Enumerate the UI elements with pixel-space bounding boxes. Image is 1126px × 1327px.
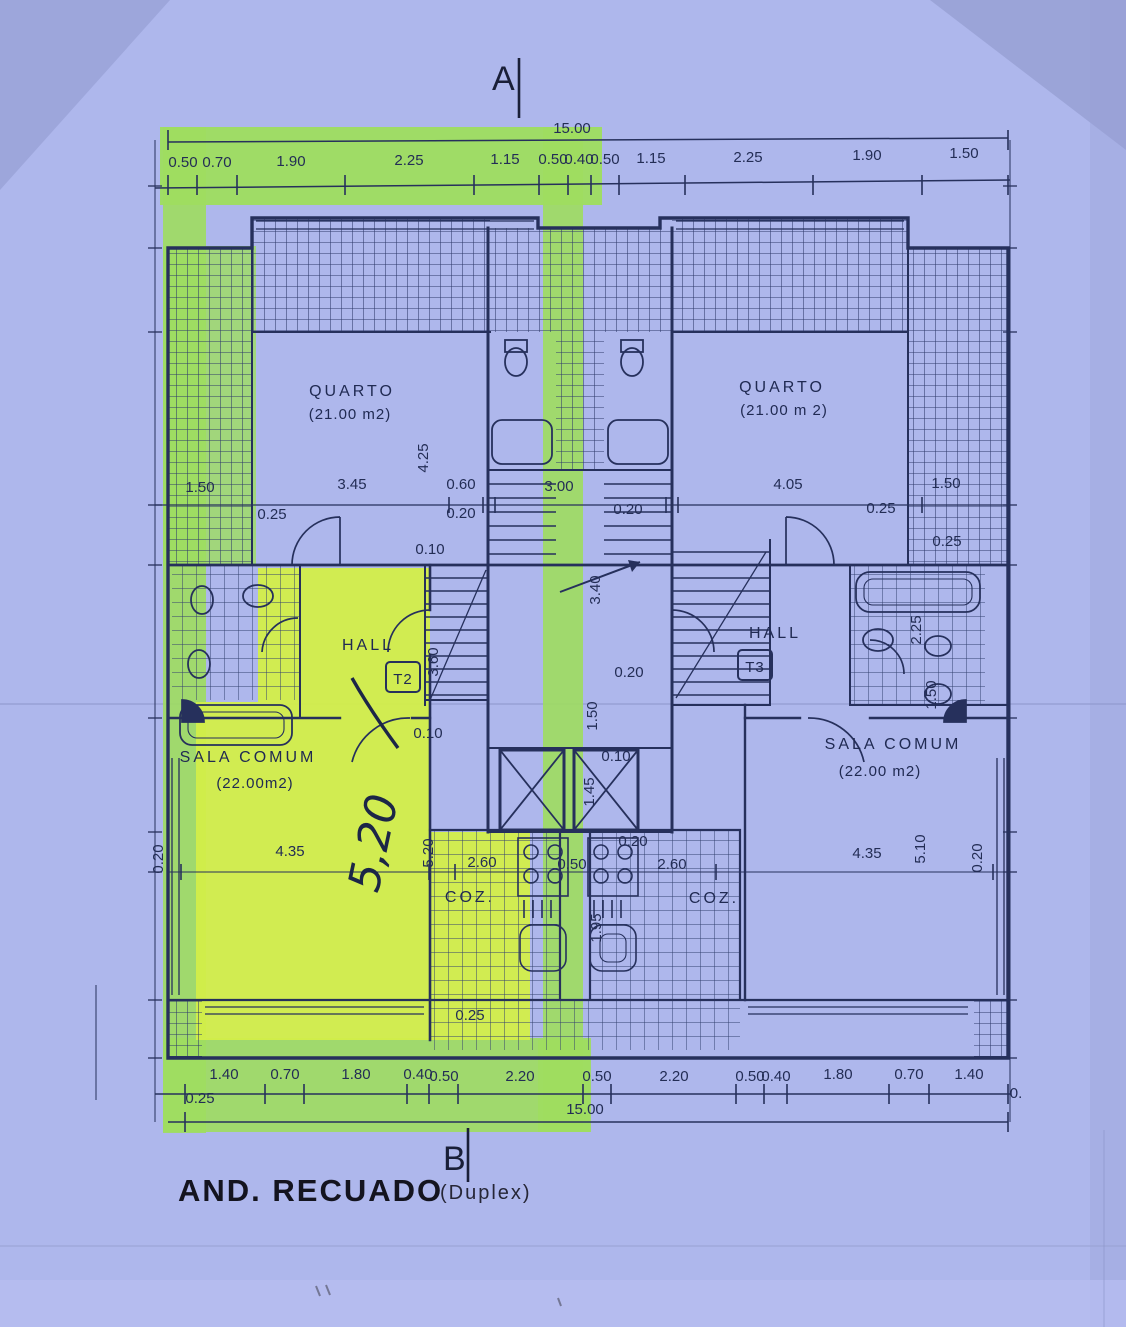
room-label-sala-right: SALA COMUM bbox=[825, 736, 962, 753]
dimension-label: 0.50 bbox=[582, 1068, 611, 1085]
dimension-label: 0.70 bbox=[202, 154, 231, 171]
dimension-label: 0. bbox=[1010, 1085, 1023, 1102]
room-area-quarto-left: (21.00 m2) bbox=[309, 406, 392, 423]
dimension-label: 1.80 bbox=[341, 1066, 370, 1083]
dimension-label: 0.70 bbox=[894, 1066, 923, 1083]
dimension-label: 5.20 bbox=[420, 838, 437, 867]
dimension-label: 0.40 bbox=[403, 1066, 432, 1083]
dimension-label: 0.20 bbox=[614, 664, 643, 681]
dimension-label: 1.50 bbox=[584, 701, 601, 730]
dimension-label: 1.80 bbox=[823, 1066, 852, 1083]
dimension-label: 0.50 bbox=[735, 1068, 764, 1085]
room-label-coz-left: COZ. bbox=[445, 889, 495, 906]
dimension-label: 3.60 bbox=[425, 647, 442, 676]
dimension-label: 1.50 bbox=[185, 479, 214, 496]
section-marker-b: B bbox=[443, 1140, 466, 1178]
dimension-label: 1.50 bbox=[949, 145, 978, 162]
dimension-label: 3.00 bbox=[544, 478, 573, 495]
unit-tag-t3: T3 bbox=[745, 659, 765, 676]
room-label-sala-left: SALA COMUM bbox=[180, 749, 317, 766]
dimension-label: 1.45 bbox=[581, 777, 598, 806]
section-marker-a: A bbox=[492, 60, 515, 98]
dimension-label: 1.95 bbox=[588, 913, 605, 942]
dimension-label: 2.25 bbox=[908, 615, 925, 644]
dimension-label: 1.90 bbox=[852, 147, 881, 164]
dimension-label: 0.40 bbox=[564, 151, 593, 168]
room-label-hall-right: HALL bbox=[749, 625, 801, 642]
dimension-label: 2.20 bbox=[505, 1068, 534, 1085]
dimension-label: 0.50 bbox=[538, 151, 567, 168]
dimension-label: 1.15 bbox=[490, 151, 519, 168]
dimension-label: 2.60 bbox=[657, 856, 686, 873]
dimension-label: 2.25 bbox=[733, 149, 762, 166]
dimension-label: 1.50 bbox=[923, 680, 940, 709]
room-label-coz-right: COZ. bbox=[689, 890, 739, 907]
dimension-label: 0.25 bbox=[866, 500, 895, 517]
dimension-label: 0.50 bbox=[590, 151, 619, 168]
room-area-quarto-right: (21.00 m 2) bbox=[740, 402, 828, 419]
floorplan-canvas: A B QUARTO (21.00 m2) QUARTO (21.00 m 2)… bbox=[0, 0, 1126, 1327]
dimension-label: 0.20 bbox=[446, 505, 475, 522]
dimension-label: 0.25 bbox=[932, 533, 961, 550]
dimension-label: 0.25 bbox=[455, 1007, 484, 1024]
dimension-label: 1.40 bbox=[209, 1066, 238, 1083]
dimension-label: 2.20 bbox=[659, 1068, 688, 1085]
dimension-label: 0.20 bbox=[618, 833, 647, 850]
dimension-label: 1.50 bbox=[931, 475, 960, 492]
room-label-quarto-right: QUARTO bbox=[739, 379, 825, 396]
dimension-label: 0.10 bbox=[601, 748, 630, 765]
top-total-dimension: 15.00 bbox=[553, 120, 591, 137]
dimension-label: 0.40 bbox=[761, 1068, 790, 1085]
dimension-label: 0.25 bbox=[257, 506, 286, 523]
room-label-quarto-left: QUARTO bbox=[309, 383, 395, 400]
dimension-label: 1.90 bbox=[276, 153, 305, 170]
dimension-label: 0.70 bbox=[270, 1066, 299, 1083]
dimension-label: 5.10 bbox=[912, 834, 929, 863]
scanned-blueprint-page: A B QUARTO (21.00 m2) QUARTO (21.00 m 2)… bbox=[0, 0, 1126, 1327]
dimension-label: 2.25 bbox=[394, 152, 423, 169]
dimension-label: 0.10 bbox=[413, 725, 442, 742]
highlight-bottom-band bbox=[163, 1038, 591, 1132]
dimension-label: 4.35 bbox=[852, 845, 881, 862]
drawing-subtitle: (Duplex) bbox=[440, 1182, 532, 1204]
dimension-label: 4.25 bbox=[415, 443, 432, 472]
dimension-label: 0.10 bbox=[415, 541, 444, 558]
dimension-label: 0.20 bbox=[150, 844, 167, 873]
room-area-sala-right: (22.00 m2) bbox=[839, 763, 922, 780]
dimension-label: 0.25 bbox=[185, 1090, 214, 1107]
dimension-label: 0.50 bbox=[168, 154, 197, 171]
dimension-label: 4.35 bbox=[275, 843, 304, 860]
room-label-hall-left: HALL bbox=[342, 637, 394, 654]
dimension-label: 4.05 bbox=[773, 476, 802, 493]
dimension-label: 0.50 bbox=[429, 1068, 458, 1085]
drawing-title: AND. RECUADO bbox=[178, 1173, 443, 1208]
dimension-label: 0.50 bbox=[557, 856, 586, 873]
unit-tag-t2: T2 bbox=[393, 671, 413, 688]
dimension-label: 1.15 bbox=[636, 150, 665, 167]
dimension-label: 2.60 bbox=[467, 854, 496, 871]
dimension-label: 0.60 bbox=[446, 476, 475, 493]
dimension-label: 3.45 bbox=[337, 476, 366, 493]
dimension-label: 0.20 bbox=[969, 843, 986, 872]
dimension-label: 1.40 bbox=[954, 1066, 983, 1083]
bottom-total-dimension: 15.00 bbox=[566, 1101, 604, 1118]
dimension-label: 3.40 bbox=[587, 575, 604, 604]
room-area-sala-left: (22.00m2) bbox=[216, 775, 293, 792]
dimension-label: 0.20 bbox=[613, 501, 642, 518]
